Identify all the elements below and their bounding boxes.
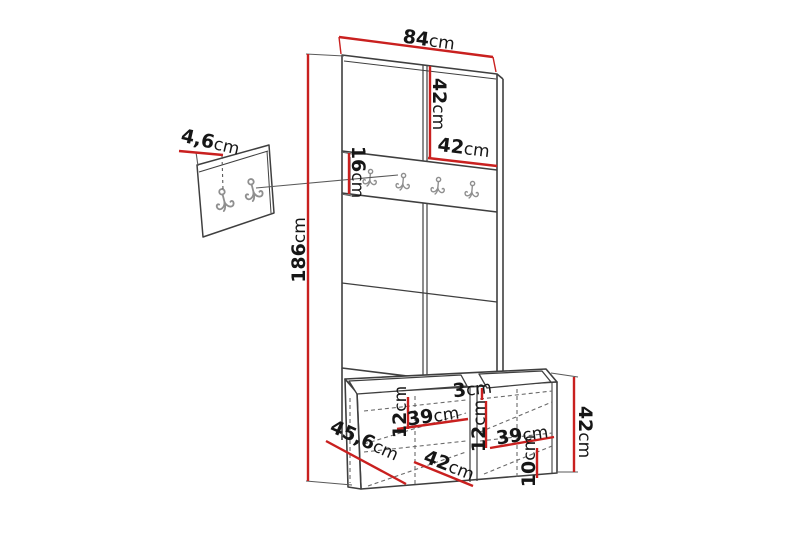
dim-label-door-height: 42cm	[428, 78, 450, 130]
dim-label-rail-height: 16cm	[347, 146, 369, 198]
diagram-canvas: 84cm 42cm 42cm 16cm 186cm 4,6cm 3cm 12cm…	[0, 0, 800, 533]
dim-label-bench-height: 42cm	[574, 406, 596, 458]
dim-label-total-height: 186cm	[288, 217, 310, 283]
dim-label-plinth-height: 10cm	[518, 435, 540, 487]
panel-body	[342, 55, 497, 387]
furniture-dimension-diagram: 84cm 42cm 42cm 16cm 186cm 4,6cm 3cm 12cm…	[0, 0, 800, 533]
dim-label-mid-inner-height: 12cm	[468, 400, 490, 452]
